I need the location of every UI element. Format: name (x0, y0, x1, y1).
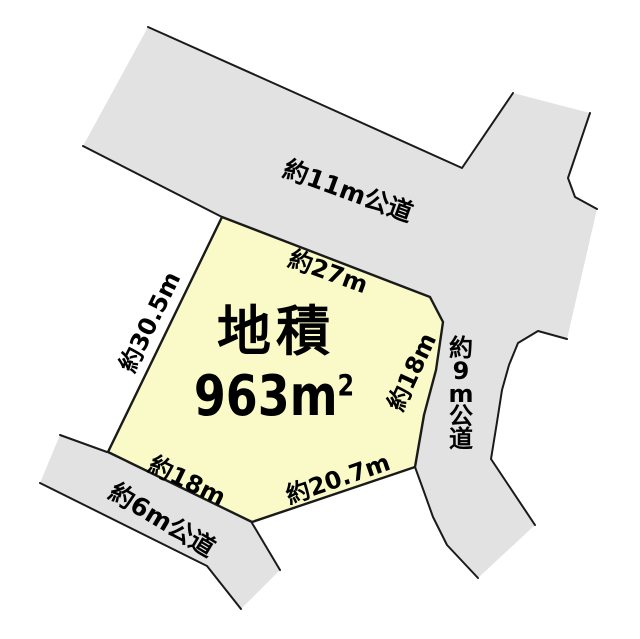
road-right-label: 約 9 m 公 道 (448, 337, 473, 451)
plot-area-title: 地積 (217, 305, 335, 359)
plot-area-value: 963m2 (194, 369, 354, 425)
plot-area-exponent: 2 (338, 368, 355, 402)
land-plot-diagram: 約11m公道 約 9 m 公 道 約6m公道 約27m 約30.5m 約18m … (0, 0, 640, 639)
plot-area-number: 963m (194, 364, 338, 429)
